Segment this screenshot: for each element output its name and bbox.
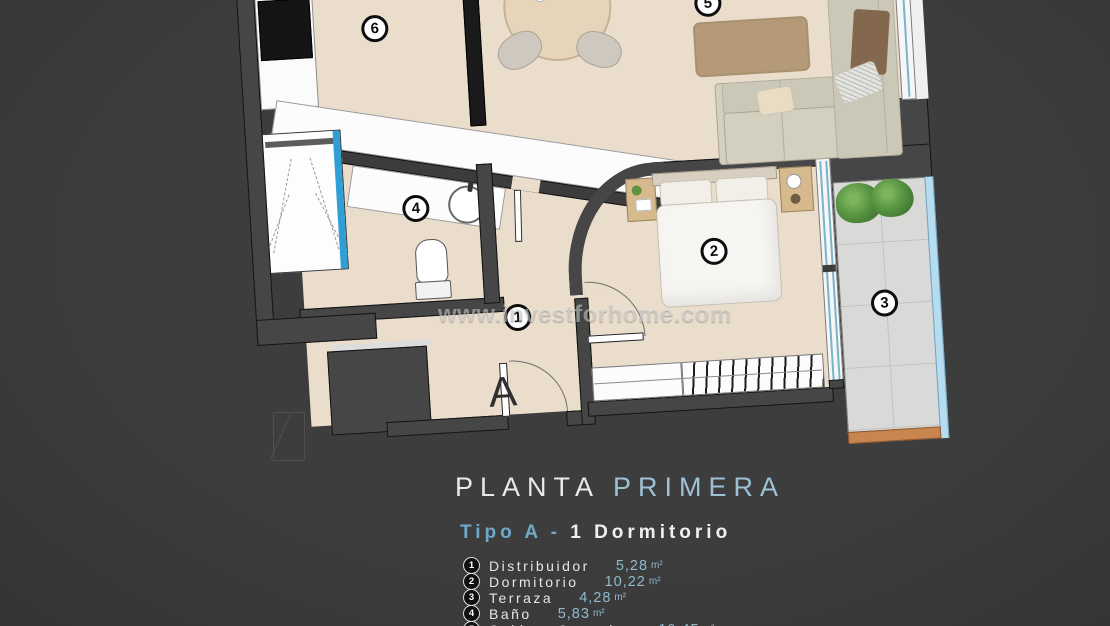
legend-unit: m² <box>649 576 661 587</box>
legend-area: 10,22 <box>605 574 646 590</box>
marker-number: 5 <box>703 0 712 12</box>
ghost-logo-diagonal <box>269 412 292 462</box>
plan-title-accent: PRIMERA <box>613 472 785 502</box>
legend-unit: m² <box>593 608 605 619</box>
legend-row: 2 Dormitorio 10,22 m² <box>463 573 661 590</box>
plan-title-main: PLANTA <box>455 472 613 502</box>
floor-plan: A 1 2 3 4 5 6 <box>210 0 950 511</box>
bath-door-leaf <box>514 190 522 242</box>
legend-row: 3 Terraza 4,28 m² <box>463 589 626 606</box>
window-divider <box>823 264 836 272</box>
cooktop <box>257 0 313 61</box>
plan-subtitle-accent: Tipo A - <box>460 522 570 543</box>
entrance-label: A <box>487 367 518 417</box>
nightstand-plant <box>631 185 642 196</box>
shower-mark <box>273 159 291 254</box>
legend-room-name: Distribuidor <box>489 558 590 574</box>
rug <box>693 16 811 78</box>
legend-bullet: 2 <box>463 573 480 590</box>
plan-subtitle-main: 1 Dormitorio <box>570 522 731 543</box>
legend-bullet: 5 <box>463 621 480 626</box>
nightstand-cup <box>786 173 802 189</box>
watermark: www.investforhome.com <box>438 301 732 329</box>
marker-number: 2 <box>709 243 718 260</box>
marker-number: 3 <box>880 294 889 311</box>
toilet <box>414 238 449 284</box>
legend-area: 4,28 <box>579 590 611 606</box>
ghost-logo <box>273 412 305 461</box>
legend-unit: m² <box>614 592 626 603</box>
legend-room-name: Salón - Comedor <box>489 622 632 626</box>
legend-room-name: Baño <box>489 606 532 622</box>
legend-unit: m² <box>651 560 663 571</box>
legend-row: 4 Baño 5,83 m² <box>463 605 605 622</box>
legend-area: 5,83 <box>558 606 590 622</box>
toilet-tank <box>415 280 452 300</box>
legend-bullet: 4 <box>463 605 480 622</box>
marker-number: 6 <box>370 20 379 37</box>
nightstand-deco <box>790 193 801 204</box>
window-post <box>829 379 845 389</box>
nightstand-paper <box>635 199 652 212</box>
legend-bullet: 3 <box>463 589 480 606</box>
nightstand-right <box>779 166 815 213</box>
shower-rail <box>265 138 335 148</box>
caption-block: PLANTA PRIMERA Tipo A - 1 Dormitorio 1 D… <box>455 472 785 503</box>
legend-row: 1 Distribuidor 5,28 m² <box>463 557 663 574</box>
screenshot: A 1 2 3 4 5 6 www.investforhome.com PLAN… <box>0 0 1110 626</box>
legend-area: 10,45 <box>658 622 699 626</box>
legend-room-name: Dormitorio <box>489 574 579 590</box>
plan-title: PLANTA PRIMERA <box>455 472 785 503</box>
plan-subtitle: Tipo A - 1 Dormitorio <box>460 522 731 544</box>
shower <box>261 129 349 274</box>
window-glass <box>900 0 911 97</box>
legend-area: 5,28 <box>616 558 648 574</box>
legend-room-name: Terraza <box>489 590 553 606</box>
legend-bullet: 1 <box>463 557 480 574</box>
legend-row: 5 Salón - Comedor 10,45 m² <box>463 621 714 626</box>
marker-number: 4 <box>411 200 420 217</box>
